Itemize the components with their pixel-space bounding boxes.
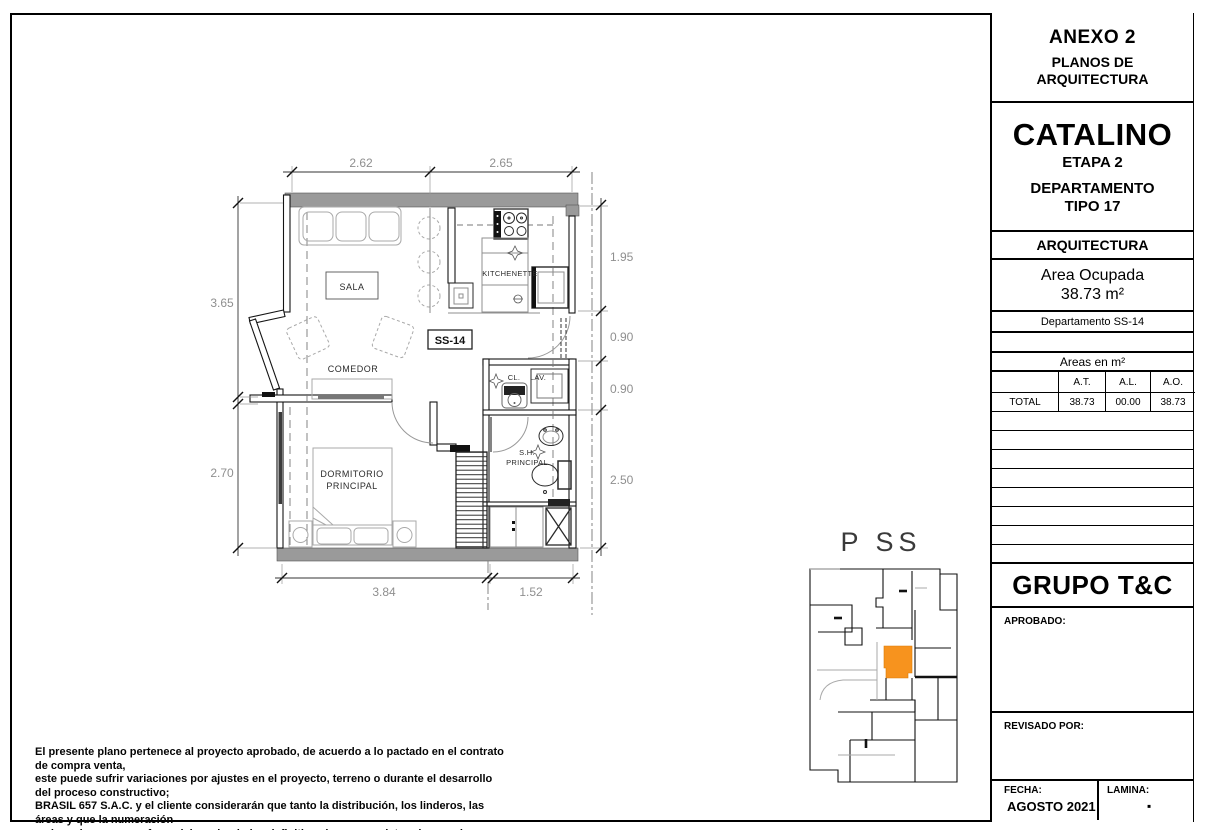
- areas-table-empty-row: [992, 431, 1193, 450]
- room-labels: SALA COMEDOR KITCHENETTE DORMITORIO PRIN…: [320, 269, 548, 491]
- department-section: Departamento SS-14: [992, 312, 1193, 333]
- areas-table-value-at: 38.73: [1058, 392, 1105, 412]
- room-label-comedor: COMEDOR: [328, 364, 379, 374]
- disclaimer-line-2: este puede sufrir variaciones por ajuste…: [35, 773, 505, 800]
- approved-label: APROBADO:: [1004, 616, 1066, 627]
- dim-left-1: 3.65: [210, 296, 234, 310]
- areas-table-title-text: Areas en m²: [1060, 355, 1125, 369]
- disclaimer-note: El presente plano pertenece al proyecto …: [35, 746, 505, 830]
- sheet-number-mark: ▪: [1147, 799, 1151, 813]
- reviewed-section: REVISADO POR:: [992, 713, 1193, 781]
- kitchen-cabinet: [449, 283, 473, 308]
- key-plan-title: P SS: [840, 527, 921, 557]
- dim-top-1: 2.62: [349, 156, 373, 170]
- shaft-hatch: [456, 452, 487, 548]
- areas-table-value-ao: 38.73: [1150, 392, 1195, 412]
- key-plan: P SS: [810, 527, 957, 782]
- areas-table-title: Areas en m²: [992, 353, 1193, 372]
- areas-table-empty-row: [992, 412, 1193, 431]
- company-name: GRUPO T&C: [1012, 570, 1173, 601]
- dim-right-1: 1.95: [610, 250, 634, 264]
- occupied-area-label: Area Ocupada: [1041, 266, 1144, 285]
- areas-table-corner-cell: [992, 372, 1058, 392]
- approved-section: APROBADO:: [992, 608, 1193, 713]
- disclaimer-line-1: El presente plano pertenece al proyecto …: [35, 746, 505, 773]
- lower-cabinets: [490, 507, 543, 547]
- disclaimer-line-3: BRASIL 657 S.A.C. y el cliente considera…: [35, 800, 505, 827]
- duct-box: [546, 508, 571, 545]
- discipline-label: ARQUITECTURA: [1037, 237, 1149, 253]
- spacer-row: [992, 333, 1193, 353]
- room-label-sh-1: S.H.: [519, 448, 535, 457]
- dim-right-4: 2.50: [610, 473, 634, 487]
- room-label-dormitorio-1: DORMITORIO: [320, 469, 383, 479]
- areas-table-empty-row: [992, 469, 1193, 488]
- unit-label-text: SS-14: [435, 335, 466, 347]
- annex-section: ANEXO 2 PLANOS DE ARQUITECTURA: [992, 13, 1193, 103]
- furniture: [285, 207, 543, 547]
- sheet-cell: LAMINA: ▪: [1097, 781, 1193, 820]
- unit-type-line1: DEPARTAMENTO: [1030, 180, 1154, 198]
- areas-table: A.T. A.L. A.O. TOTAL 38.73 00.00 38.73: [992, 372, 1193, 412]
- drain-symbol: [513, 295, 523, 303]
- areas-table-row-label: TOTAL: [992, 392, 1058, 412]
- company-section: GRUPO T&C: [992, 564, 1193, 608]
- sofa: [299, 207, 401, 245]
- key-plan-outline: [810, 569, 957, 782]
- room-label-kitchenette: KITCHENETTE: [482, 269, 537, 278]
- annex-title: ANEXO 2: [1049, 27, 1136, 49]
- bed: [313, 448, 392, 545]
- department-label: Departamento SS-14: [1041, 316, 1144, 328]
- dim-right-2: 0.90: [610, 330, 634, 344]
- reviewed-label: REVISADO POR:: [1004, 721, 1084, 732]
- sheet-label: LAMINA:: [1107, 785, 1193, 796]
- sink: [539, 427, 563, 446]
- dim-bottom-2: 1.52: [519, 585, 543, 599]
- areas-table-header-at: A.T.: [1058, 372, 1105, 392]
- bedroom-door-arc: [392, 402, 433, 443]
- room-label-sh-2: PRINCIPAL: [506, 458, 548, 467]
- date-cell: FECHA: AGOSTO 2021: [992, 781, 1097, 820]
- bedroom-window: [279, 412, 283, 504]
- light-symbol-closet: [489, 374, 503, 388]
- annex-subtitle-line2: ARQUITECTURA: [1037, 71, 1149, 88]
- room-label-lav: LAV.: [530, 373, 546, 382]
- room-label-dormitorio-2: PRINCIPAL: [326, 481, 377, 491]
- areas-table-empty-row: [992, 450, 1193, 469]
- unit-label: SS-14: [428, 330, 472, 349]
- occupied-area-section: Area Ocupada 38.73 m²: [992, 260, 1193, 312]
- doors: [392, 316, 570, 452]
- dim-right-3: 0.90: [610, 382, 634, 396]
- title-block: ANEXO 2 PLANOS DE ARQUITECTURA CATALINO …: [990, 13, 1193, 822]
- dim-left-2: 2.70: [210, 466, 234, 480]
- annex-subtitle: PLANOS DE ARQUITECTURA: [1037, 54, 1149, 88]
- stove: [494, 209, 528, 239]
- areas-table-empty-row: [992, 488, 1193, 507]
- project-stage: ETAPA 2: [1062, 154, 1123, 171]
- room-label-sala: SALA: [339, 282, 364, 292]
- areas-table-header-ao: A.O.: [1150, 372, 1195, 392]
- areas-table-empty-row: [992, 526, 1193, 545]
- plan-sheet: 2.62 2.65 3.65 2.70 1.95 0.90 0.90 2.50 …: [0, 0, 1205, 830]
- dim-top-2: 2.65: [489, 156, 513, 170]
- unit-type-line2: TIPO 17: [1030, 198, 1154, 216]
- dining-chairs: [285, 315, 414, 360]
- water-heater: [502, 383, 527, 408]
- bathroom-door-arc: [493, 417, 528, 452]
- key-plan-highlight-unit: [884, 646, 912, 678]
- date-label: FECHA:: [1004, 785, 1097, 796]
- annex-subtitle-line1: PLANOS DE: [1037, 54, 1149, 71]
- areas-table-value-al: 00.00: [1105, 392, 1150, 412]
- unit-type: DEPARTAMENTO TIPO 17: [1030, 180, 1154, 216]
- room-label-cl: CL.: [508, 373, 521, 382]
- date-sheet-section: FECHA: AGOSTO 2021 LAMINA: ▪: [992, 781, 1193, 820]
- partition-walls: [249, 195, 576, 548]
- entrance-door-arc: [528, 316, 570, 358]
- occupied-area-value: 38.73 m²: [1061, 285, 1124, 304]
- bar-stools: [418, 217, 440, 307]
- project-section: CATALINO ETAPA 2 DEPARTAMENTO TIPO 17: [992, 103, 1193, 232]
- areas-table-empty-row: [992, 507, 1193, 526]
- date-value: AGOSTO 2021: [1007, 799, 1097, 814]
- areas-table-header-al: A.L.: [1105, 372, 1150, 392]
- dining-table: [312, 379, 392, 399]
- areas-table-empty-row: [992, 545, 1193, 564]
- laundry-closet-fixtures: [489, 369, 571, 545]
- discipline-section: ARQUITECTURA: [992, 232, 1193, 260]
- dim-bottom-1: 3.84: [372, 585, 396, 599]
- project-name: CATALINO: [1013, 117, 1173, 153]
